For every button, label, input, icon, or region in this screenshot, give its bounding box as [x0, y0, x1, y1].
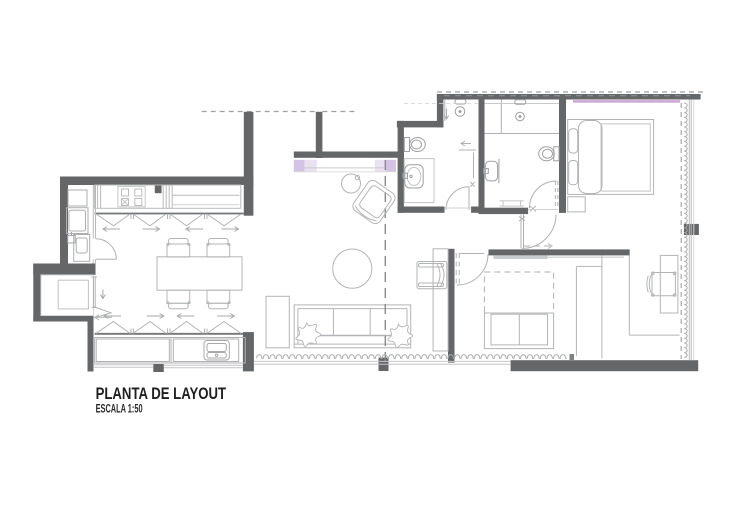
svg-text:PLANTA DE LAYOUT: PLANTA DE LAYOUT	[96, 385, 227, 403]
svg-text:ESCALA 1:50: ESCALA 1:50	[96, 403, 143, 415]
